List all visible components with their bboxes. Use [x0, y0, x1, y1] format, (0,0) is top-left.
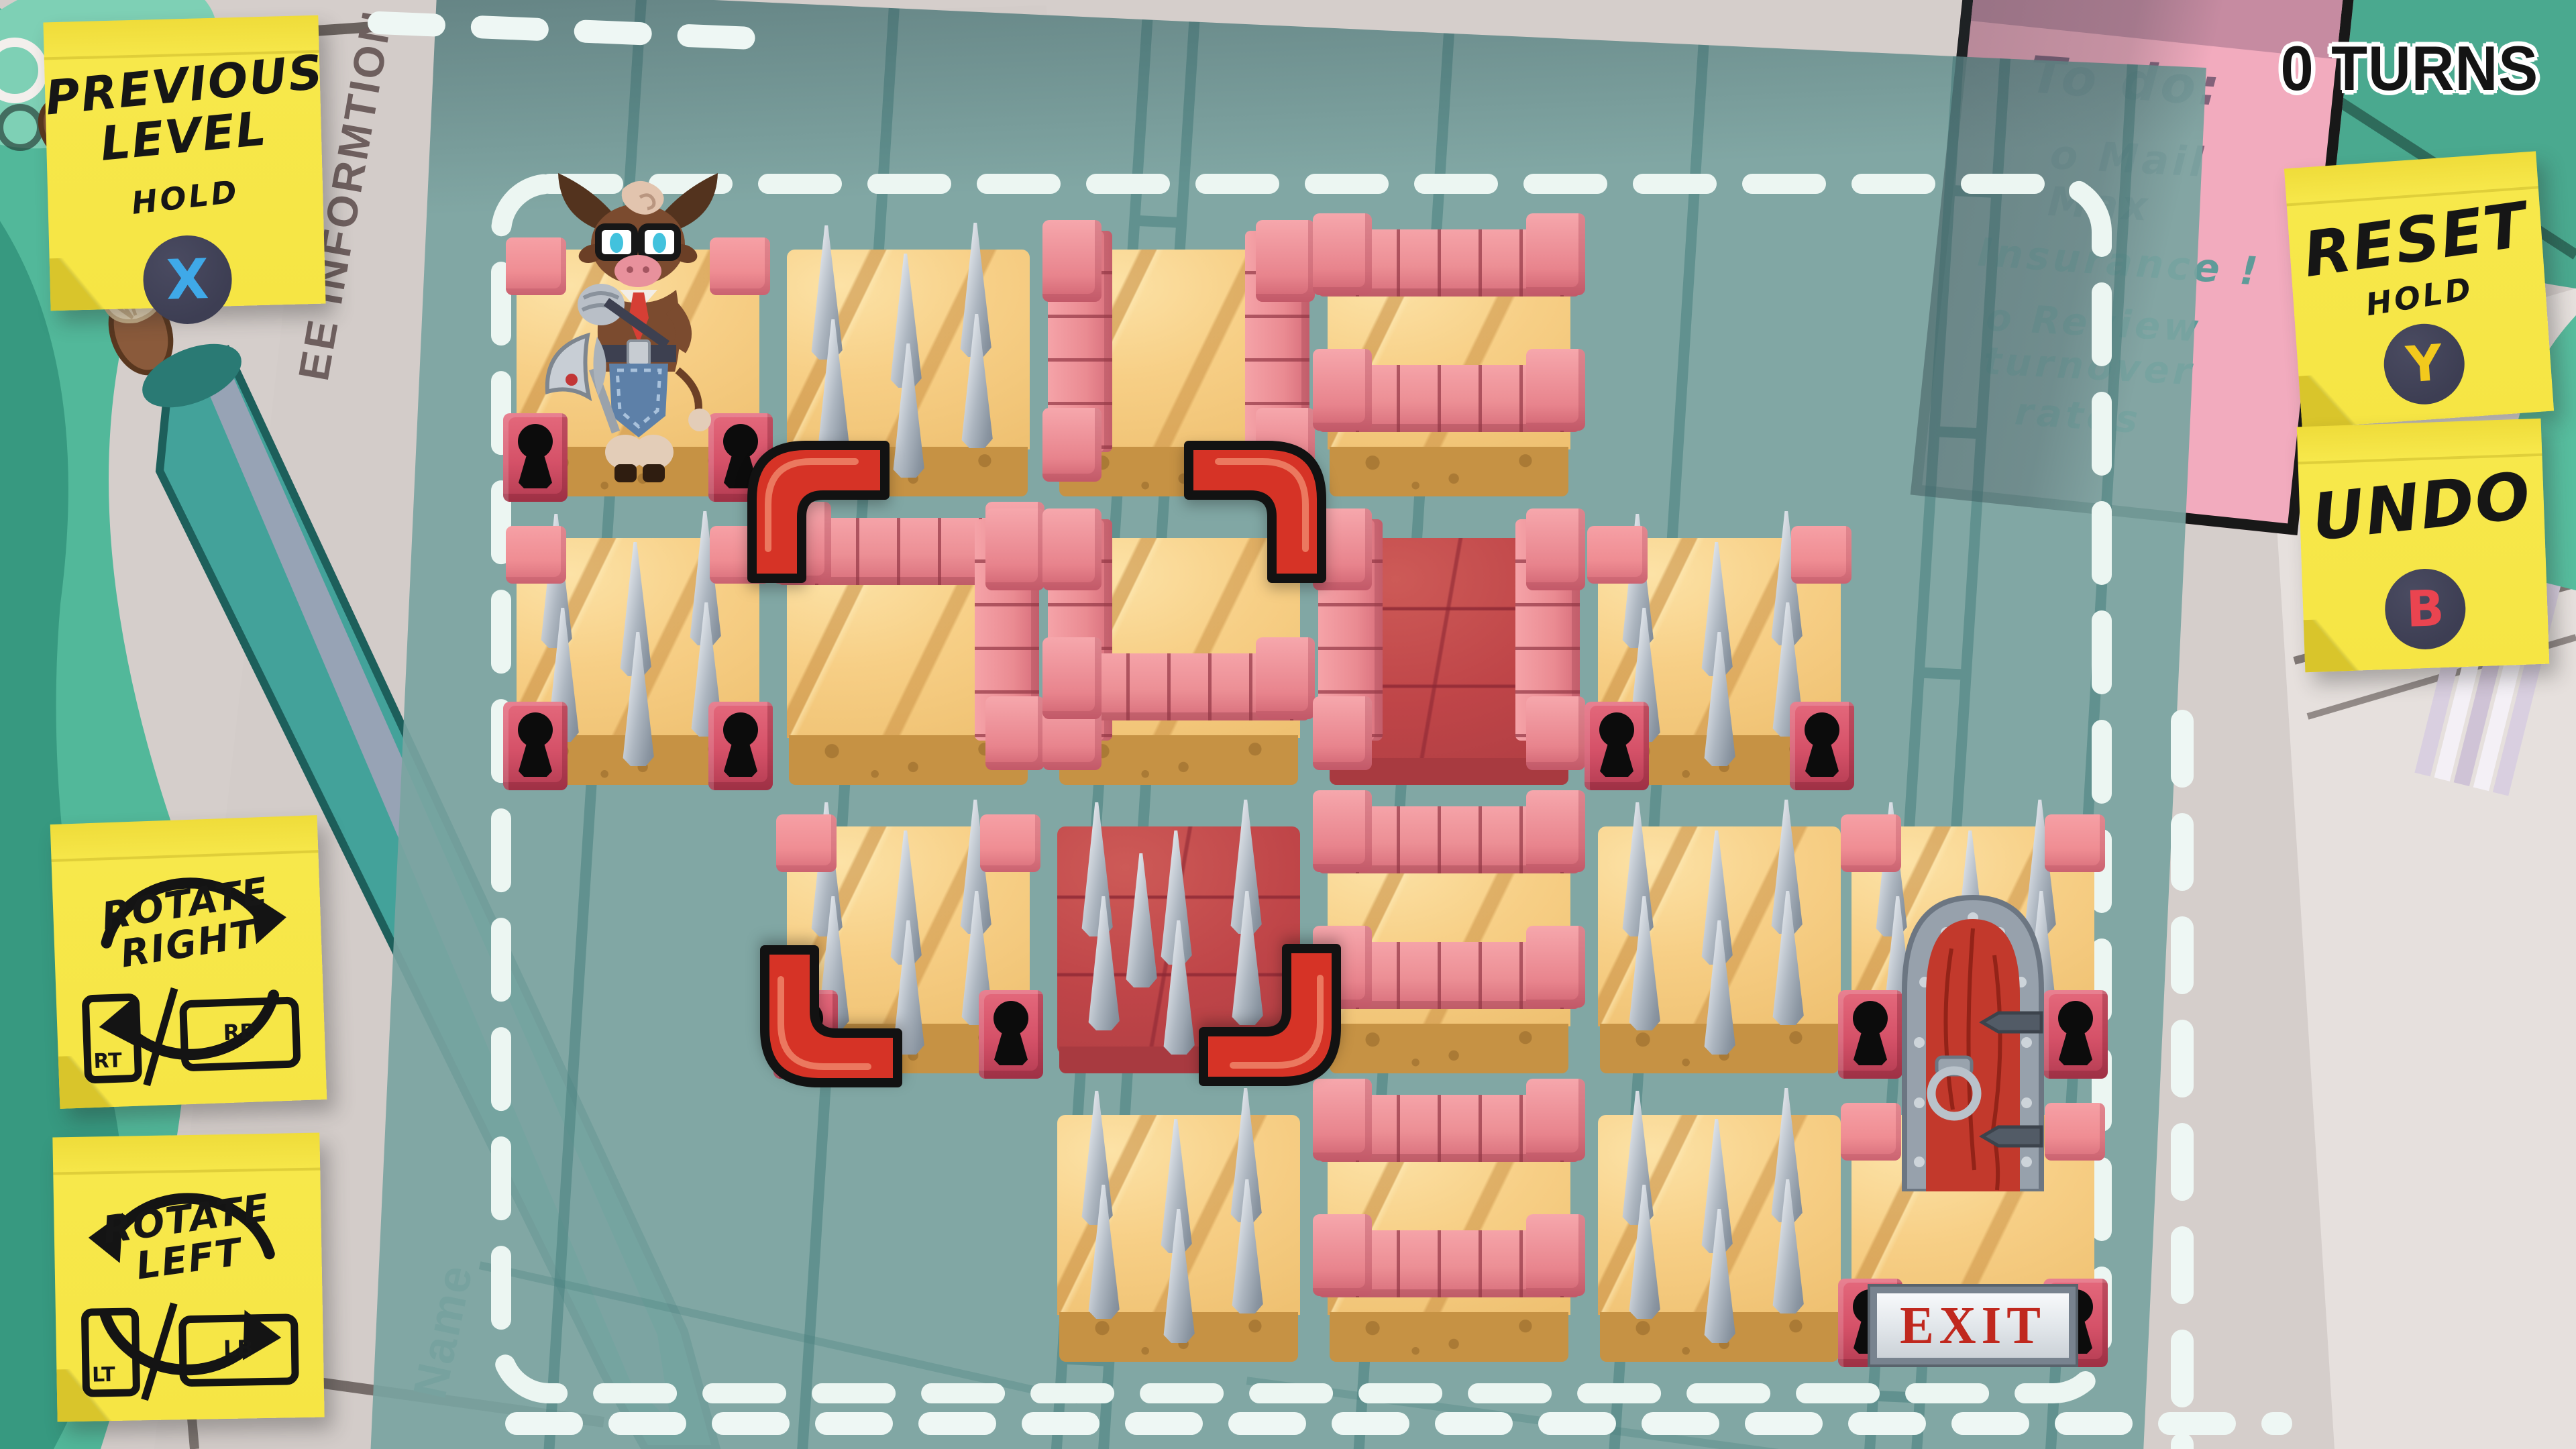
wall-end-block [1042, 637, 1102, 719]
tile-dirt-edge [1330, 1312, 1568, 1362]
hold-hint-label: HOLD [47, 164, 324, 231]
left-trigger-icon: LT [80, 1307, 140, 1397]
wall-end-block [1042, 508, 1102, 590]
slash-divider [143, 987, 178, 1086]
tile-corridor-horizontal-r1c4[interactable] [1328, 250, 1570, 496]
button-y-icon[interactable]: Y [2381, 321, 2467, 407]
turn-counter: 0 TURNS [2280, 32, 2538, 105]
wall-end-block [1256, 220, 1315, 302]
undo-label: UNDO [2297, 460, 2547, 554]
note-rotate-right[interactable]: ROTATE RIGHT RT RB [50, 815, 327, 1109]
tile-corridor-horizontal-r3c4[interactable] [1328, 826, 1570, 1073]
character-minotaur [534, 169, 742, 504]
keyhole-icon [1585, 702, 1649, 790]
corner-block [2045, 1103, 2105, 1161]
corner-block [1841, 814, 1901, 872]
door-hinge-icon [1982, 1127, 2041, 1146]
wall-end-block [1042, 220, 1102, 302]
wall-end-block [1526, 349, 1585, 431]
tile-dirt-edge [1330, 447, 1568, 496]
button-b-icon[interactable]: B [2383, 568, 2467, 651]
tile-spike-room-r3c5[interactable] [1598, 826, 1841, 1073]
corner-block [2045, 814, 2105, 872]
slash-divider [141, 1302, 177, 1401]
rotate-bracket-top-left [741, 435, 894, 588]
exit-sign: EXIT [1870, 1287, 2076, 1364]
tile-spike-room-r4c3[interactable] [1057, 1115, 1300, 1362]
wall-end-block [1526, 790, 1585, 872]
tile-spike-room-r2c5[interactable] [1598, 538, 1841, 785]
puzzle-board [0, 0, 2576, 1449]
keyhole-icon [2043, 990, 2108, 1079]
wall-end-block [1526, 1214, 1585, 1296]
rotate-bracket-top-right [1179, 435, 1332, 588]
wall-end-block [1313, 696, 1372, 770]
wall-end-block [1526, 696, 1585, 770]
wall-end-block [985, 696, 1044, 770]
right-trigger-icon: RT [81, 994, 142, 1084]
exit-door [1899, 888, 2047, 1191]
note-undo[interactable]: UNDO B [2297, 419, 2550, 672]
tile-spike-room-r2c1[interactable] [517, 538, 759, 785]
wall-end-block [1042, 408, 1102, 482]
tile-spike-room-r4c5[interactable] [1598, 1115, 1841, 1362]
note-reset[interactable]: RESET HOLD Y [2284, 151, 2554, 428]
corner-block [980, 814, 1040, 872]
wall-end-block [1313, 213, 1372, 295]
note-previous-level[interactable]: PREVIOUS LEVEL HOLD X [43, 15, 325, 311]
keyhole-icon [1790, 702, 1854, 790]
wall-end-block [1256, 637, 1315, 719]
wall-end-block [1526, 213, 1585, 295]
wall-end-block [1526, 508, 1585, 590]
tile-dirt-edge [1330, 1024, 1568, 1073]
keyhole-icon [503, 702, 568, 790]
corner-block [506, 526, 566, 584]
tile-corridor-horizontal-r4c4[interactable] [1328, 1115, 1570, 1362]
rotate-bracket-bottom-left [754, 941, 907, 1093]
keyhole-icon [1838, 990, 1902, 1079]
wall-end-block [1313, 790, 1372, 872]
exit-sign-label: EXIT [1900, 1295, 2046, 1356]
wall-end-block [1313, 349, 1372, 431]
door-hinge-icon [1982, 1013, 2041, 1032]
keyhole-icon [708, 702, 773, 790]
corner-block [1841, 1103, 1901, 1161]
rotate-bracket-bottom-right [1194, 939, 1347, 1092]
wall-end-block [1526, 1079, 1585, 1161]
corner-block [1587, 526, 1648, 584]
right-bumper-icon: RB [178, 996, 301, 1071]
corner-block [1791, 526, 1851, 584]
keyhole-icon [979, 990, 1043, 1079]
corner-block [776, 814, 837, 872]
wall-end-block [985, 508, 1044, 590]
left-bumper-icon: LB [178, 1313, 299, 1387]
note-rotate-left[interactable]: ROTATE LEFT LT LB [52, 1133, 324, 1422]
wall-end-block [1313, 1214, 1372, 1296]
tile-red-room-r2c4[interactable] [1328, 538, 1570, 785]
wall-end-block [1526, 926, 1585, 1008]
